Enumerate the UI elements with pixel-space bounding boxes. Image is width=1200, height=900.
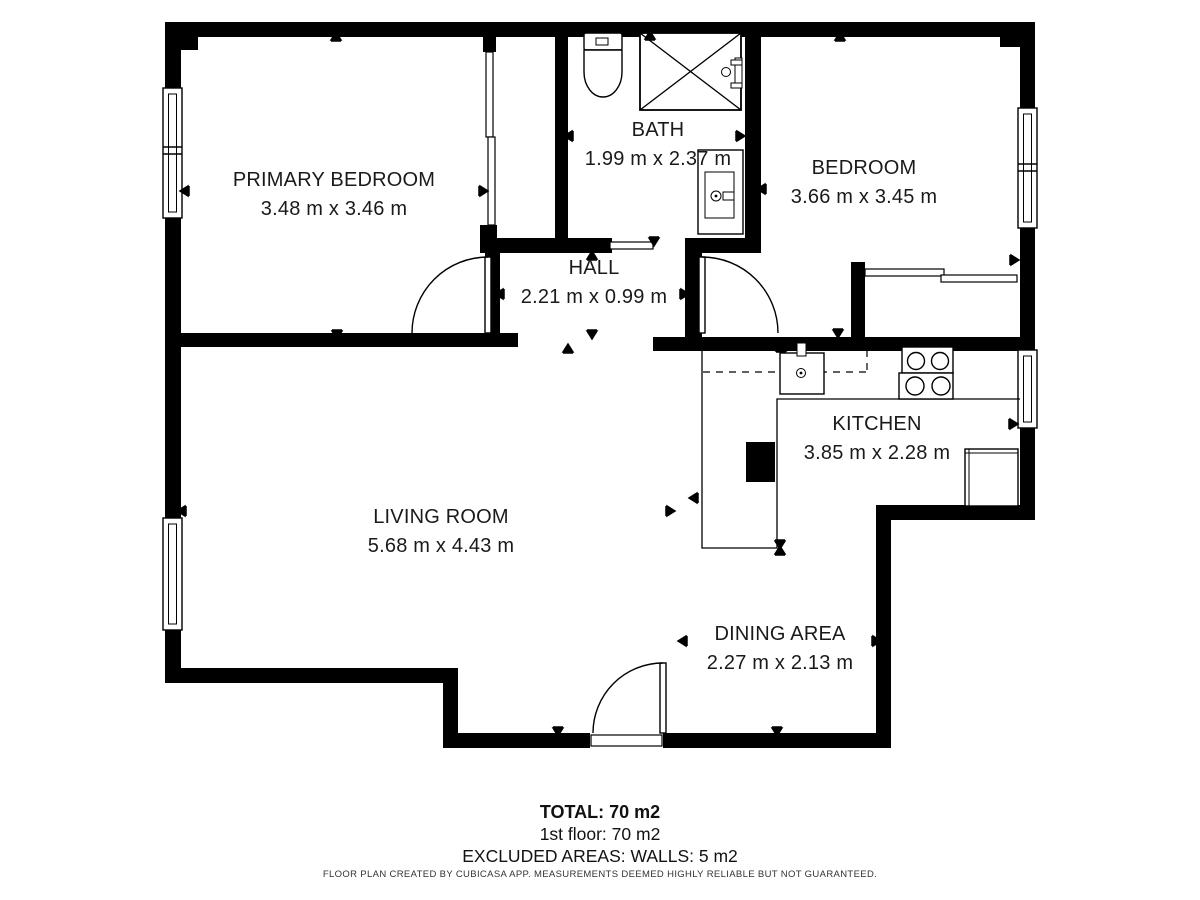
room-dims: 3.48 m x 3.46 m	[233, 195, 435, 224]
window-icon	[1018, 350, 1037, 428]
floor-area: 1st floor: 70 m2	[0, 823, 1200, 845]
room-label-kitchen: KITCHEN 3.85 m x 2.28 m	[804, 410, 950, 468]
room-label-bath: BATH 1.99 m x 2.37 m	[585, 116, 731, 174]
room-name: PRIMARY BEDROOM	[233, 166, 435, 195]
stove-icon	[899, 347, 953, 399]
room-name: BEDROOM	[791, 154, 937, 183]
window-icon	[163, 518, 182, 630]
total-area: TOTAL: 70 m2	[0, 801, 1200, 823]
room-label-living-room: LIVING ROOM 5.68 m x 4.43 m	[368, 503, 514, 561]
room-name: LIVING ROOM	[368, 503, 514, 532]
room-name: BATH	[585, 116, 731, 145]
sliding-door-icon	[865, 269, 1017, 282]
window-icon	[163, 88, 182, 218]
room-label-hall: HALL 2.21 m x 0.99 m	[521, 254, 667, 312]
excluded-area: EXCLUDED AREAS: WALLS: 5 m2	[0, 845, 1200, 867]
door-icon	[699, 257, 778, 333]
door-icon	[412, 257, 491, 333]
room-dims: 3.66 m x 3.45 m	[791, 183, 937, 212]
room-name: KITCHEN	[804, 410, 950, 439]
window-icon	[1018, 108, 1037, 228]
area-summary: TOTAL: 70 m2 1st floor: 70 m2 EXCLUDED A…	[0, 801, 1200, 867]
entry-door-icon	[591, 663, 666, 746]
room-dims: 5.68 m x 4.43 m	[368, 532, 514, 561]
disclaimer: FLOOR PLAN CREATED BY CUBICASA APP. MEAS…	[0, 869, 1200, 880]
shower-icon	[640, 33, 742, 110]
sliding-door-icon	[610, 242, 653, 249]
room-name: HALL	[521, 254, 667, 283]
room-label-dining-area: DINING AREA 2.27 m x 2.13 m	[707, 620, 853, 678]
floor-plan: PRIMARY BEDROOM 3.48 m x 3.46 m BATH 1.9…	[0, 0, 1200, 900]
room-dims: 2.21 m x 0.99 m	[521, 283, 667, 312]
room-dims: 1.99 m x 2.37 m	[585, 145, 731, 174]
toilet-icon	[584, 33, 622, 97]
sliding-door-icon	[486, 52, 495, 225]
room-name: DINING AREA	[707, 620, 853, 649]
room-dims: 2.27 m x 2.13 m	[707, 649, 853, 678]
room-dims: 3.85 m x 2.28 m	[804, 439, 950, 468]
room-label-bedroom: BEDROOM 3.66 m x 3.45 m	[791, 154, 937, 212]
room-label-primary-bedroom: PRIMARY BEDROOM 3.48 m x 3.46 m	[233, 166, 435, 224]
fridge-icon	[965, 449, 1018, 506]
